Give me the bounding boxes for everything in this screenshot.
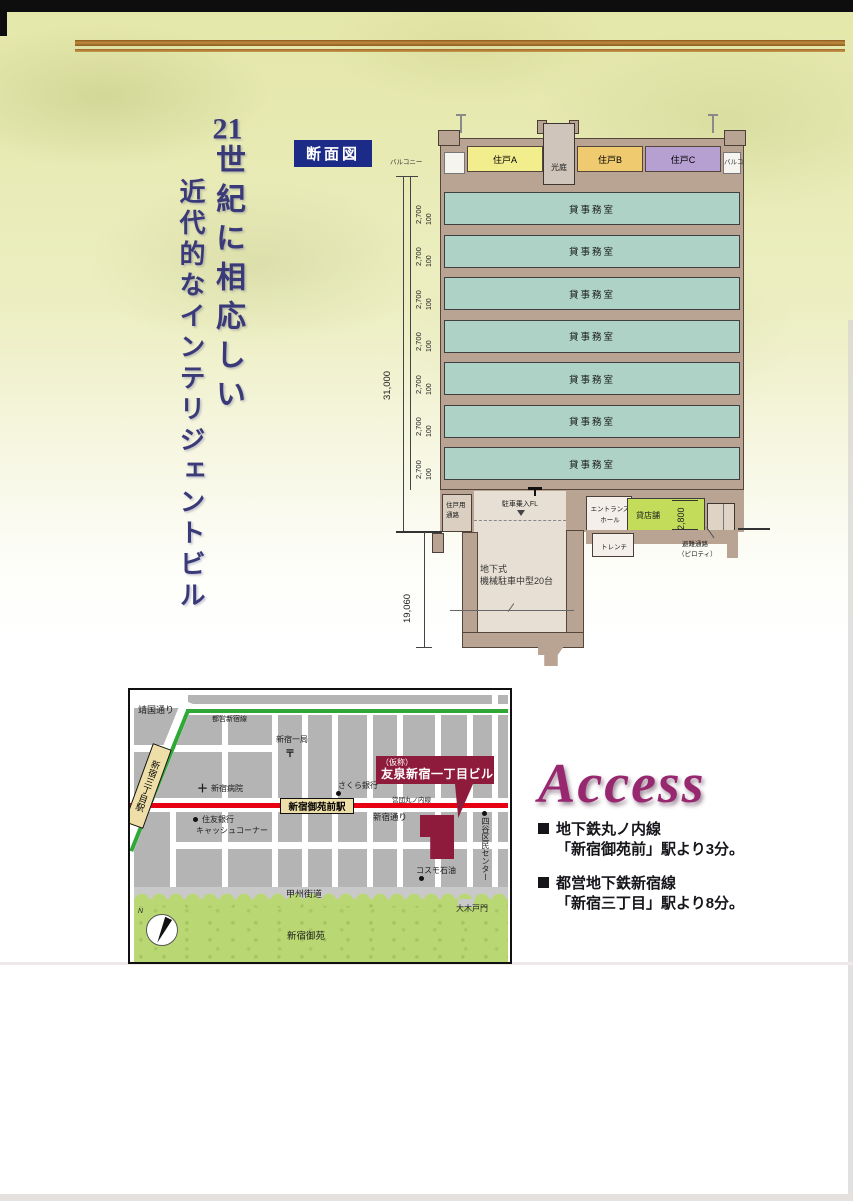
unit-a-label: 住戸A (493, 153, 517, 166)
light-court-shaft (543, 123, 575, 185)
vertical-title-line1: 21世紀に相応しい (205, 114, 249, 417)
entrance-hall-box: エントランス ホール (586, 496, 632, 532)
office-floor: 貸事務室 (444, 405, 740, 438)
pit-right-wall (566, 530, 584, 648)
dim-floor: 2,700 (414, 321, 423, 351)
cash-corner-label: キャッシュコーナー (196, 825, 268, 836)
cosmo-oil-label: コスモ石油 (416, 865, 456, 876)
level-marker-triangle (517, 510, 525, 516)
dim-floor: 2,700 (414, 279, 423, 309)
title-tail: 世紀に相応しい (211, 144, 244, 417)
toei-shinjuku-line (186, 709, 508, 713)
parking-entry-dashed-line (474, 520, 566, 521)
break-line (450, 610, 574, 611)
escape-route-label: 避難通路 (682, 538, 708, 548)
bullet-square-icon (538, 823, 549, 834)
dim-floor: 2,700 (414, 194, 423, 224)
pit-left-wall (462, 532, 478, 648)
parking-entry-area: 駐車乗入FL (474, 491, 566, 532)
yotsuya-center-label: 四谷区民センター (480, 817, 491, 885)
sumitomo-bank-dot (193, 817, 198, 822)
dim-slab: 100 (426, 463, 433, 480)
section-heading-label: 断面図 (306, 143, 360, 164)
unit-corridor-box: 住戸用 通路 (442, 494, 472, 532)
shop-label: 貸店舗 (636, 510, 660, 521)
hospital-label: 新宿病院 (211, 783, 243, 794)
dim-basement-depth: 19,060 (402, 553, 413, 623)
street (367, 708, 373, 887)
access-line: 「新宿三丁目」駅より8分。 (538, 894, 744, 914)
dim-line-basement (424, 532, 425, 648)
scan-edge-left (0, 0, 7, 36)
compass-circle (146, 914, 178, 946)
hoist-stem (534, 487, 536, 496)
scan-edge-bottom (0, 1194, 853, 1201)
right-foundation-foot (727, 544, 738, 558)
office-floor: 貸事務室 (444, 320, 740, 353)
vertical-title-line2: 近代的なインテリジェントビル (172, 178, 209, 612)
office-floor: 貸事務室 (444, 447, 740, 480)
brochure-page: 21世紀に相応しい 近代的なインテリジェントビル 断面図 31,000 2,70… (0, 0, 853, 1201)
gold-rule-thin (75, 49, 845, 52)
unit-c: 住戸C (645, 146, 721, 172)
access-map: 靖国通り 都営新宿線 営団丸ノ内線 新宿通り 甲州街道 新宿御苑前駅 新宿三丁目… (128, 688, 512, 964)
bullet-square-icon (538, 877, 549, 888)
office-floor: 貸事務室 (444, 277, 740, 310)
section-heading-box: 断面図 (294, 140, 372, 167)
dim-slab: 100 (426, 293, 433, 310)
dim-line-inner (410, 177, 411, 490)
compass-needle (153, 916, 173, 945)
roof-parapet-right (724, 130, 746, 146)
shop-box: 貸店舗 2,800 (627, 498, 705, 532)
yasukuni-dori-label: 靖国通り (138, 703, 174, 716)
unit-c-label: 住戸C (671, 153, 696, 166)
dim-tick-top (396, 176, 418, 177)
access-item: 地下鉄丸ノ内線 「新宿御苑前」駅より3分。 (538, 820, 744, 860)
cosmo-oil-dot (419, 876, 424, 881)
light-court-label: 光庭 (543, 162, 575, 173)
building-callout-prefix: （仮称） (381, 758, 489, 767)
scan-edge-right (848, 320, 853, 1201)
street (170, 842, 508, 849)
roof-parapet-left (438, 130, 460, 146)
street (492, 695, 498, 887)
dim-slab: 100 (426, 420, 433, 437)
unit-a: 住戸A (467, 146, 543, 172)
escape-route-sublabel: （ピロティ） (678, 548, 717, 558)
basement-label-2: 機械駐車中型20台 (480, 574, 553, 587)
dim-floor: 2,700 (414, 406, 423, 436)
post-office-label: 新宿一局 (276, 734, 308, 745)
balcony-left (444, 152, 465, 174)
sumitomo-bank-label: 住友銀行 (202, 814, 234, 825)
balcony-right-label: バルコニー (724, 156, 743, 166)
koshu-kaido-label: 甲州街道 (286, 887, 322, 900)
dim-slab: 100 (426, 250, 433, 267)
pilotis-box (707, 503, 735, 532)
gyoen-label: 新宿御苑 (287, 928, 325, 942)
access-line: 地下鉄丸ノ内線 (556, 821, 661, 838)
dim-floor: 2,700 (414, 449, 423, 479)
yotsuya-center-dot (482, 811, 487, 816)
building-callout-name: 友泉新宿一丁目ビル (381, 767, 489, 781)
dim-slab: 100 (426, 378, 433, 395)
dim-floor: 2,700 (414, 364, 423, 394)
toei-shinjuku-label: 都営新宿線 (212, 714, 247, 724)
sakura-bank-dot (336, 791, 341, 796)
dim-line-outer (403, 177, 404, 532)
office-floor: 貸事務室 (444, 235, 740, 268)
okido-gate-label: 大木戸門 (456, 903, 488, 914)
cross-section-diagram: 31,000 2,700 100 2,700 100 2,700 100 2,7… (380, 110, 790, 680)
unit-b-label: 住戸B (598, 153, 622, 166)
roof-antenna-right-cap (708, 114, 718, 116)
marunouchi-label: 営団丸ノ内線 (392, 794, 431, 804)
street (170, 800, 176, 887)
post-office-symbol: 〒 (285, 745, 295, 760)
shinjuku-dori-label: 新宿通り (373, 811, 407, 823)
office-floor: 貸事務室 (444, 192, 740, 225)
scan-edge-top (0, 0, 853, 12)
title-number: 21 (211, 114, 244, 144)
dim-floor: 2,700 (414, 236, 423, 266)
building-callout: （仮称） 友泉新宿一丁目ビル (376, 756, 494, 784)
sakura-bank-label: さくら銀行 (338, 780, 378, 791)
street (435, 708, 441, 887)
street (467, 708, 473, 887)
balcony-left-label: バルコニー (390, 156, 422, 166)
access-item: 都営地下鉄新宿線 「新宿三丁目」駅より8分。 (538, 874, 744, 914)
pit-bottom-slab (462, 632, 584, 648)
roof-antenna-left (460, 115, 462, 133)
roof-antenna-left-cap (456, 114, 466, 116)
office-floor: 貸事務室 (444, 362, 740, 395)
shop-dim-tick-top (672, 500, 698, 501)
gold-rule-thick (75, 40, 845, 46)
dim-shop-height: 2,800 (676, 501, 686, 530)
hospital-cross-icon: ＋ (197, 780, 208, 796)
access-heading: Access (538, 752, 706, 816)
dim-slab: 100 (426, 335, 433, 352)
pit-sump (538, 646, 564, 666)
access-line: 「新宿御苑前」駅より3分。 (538, 840, 744, 860)
roof-antenna-right (712, 115, 714, 133)
dim-tick-basement-bottom (416, 647, 432, 648)
unit-b: 住戸B (577, 146, 643, 172)
pilotis-column (723, 504, 724, 532)
compass-n-label: N (138, 908, 143, 915)
access-line: 都営地下鉄新宿線 (556, 875, 676, 892)
dim-slab: 100 (426, 208, 433, 225)
trench-box: トレンチ (592, 533, 634, 557)
gyoemmae-station-box: 新宿御苑前駅 (280, 798, 354, 814)
dim-total-height: 31,000 (382, 338, 393, 400)
street (222, 708, 228, 887)
ground-line-right (738, 528, 770, 530)
left-foundation-foot (432, 533, 444, 553)
parking-entry-label: 駐車乗入FL (474, 499, 566, 509)
